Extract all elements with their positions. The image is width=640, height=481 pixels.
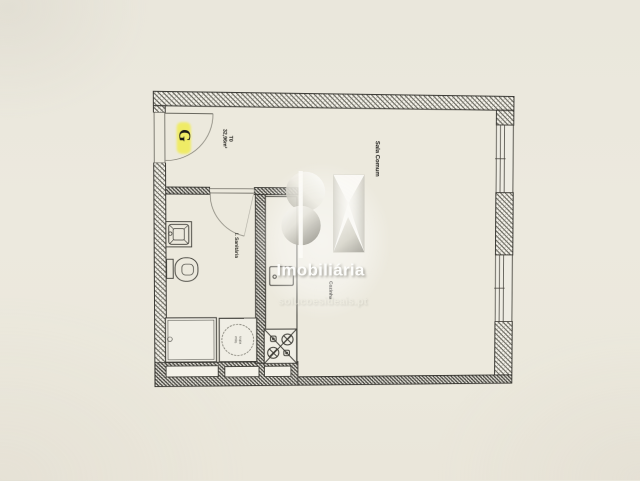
svg-text:solucoesideais.pt: solucoesideais.pt [278, 297, 367, 308]
svg-text:Imobiliária: Imobiliária [276, 261, 365, 280]
